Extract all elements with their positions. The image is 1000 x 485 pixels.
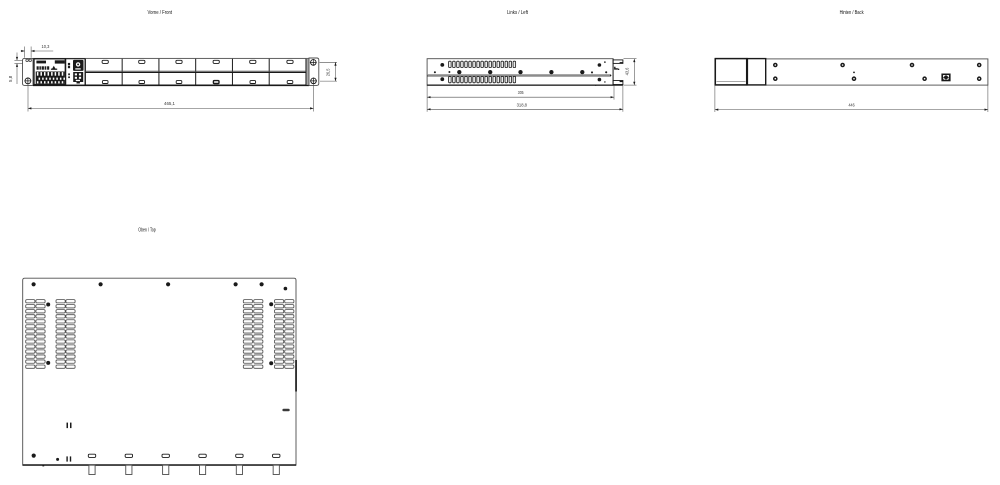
svg-text:26,5: 26,5 xyxy=(326,68,331,76)
svg-text:305: 305 xyxy=(518,90,524,95)
svg-text:Links / Left: Links / Left xyxy=(507,10,529,16)
svg-text:5,8: 5,8 xyxy=(8,75,13,82)
svg-text:10,3: 10,3 xyxy=(42,44,50,49)
svg-text:318,8: 318,8 xyxy=(517,102,528,107)
svg-text:Oben / Top: Oben / Top xyxy=(138,228,156,234)
svg-text:446: 446 xyxy=(849,103,856,108)
svg-text:465,1: 465,1 xyxy=(164,101,176,106)
svg-text:Hinten / Back: Hinten / Back xyxy=(840,10,864,16)
svg-text:Vorne / Front: Vorne / Front xyxy=(148,10,173,16)
svg-text:43,6: 43,6 xyxy=(625,67,630,75)
